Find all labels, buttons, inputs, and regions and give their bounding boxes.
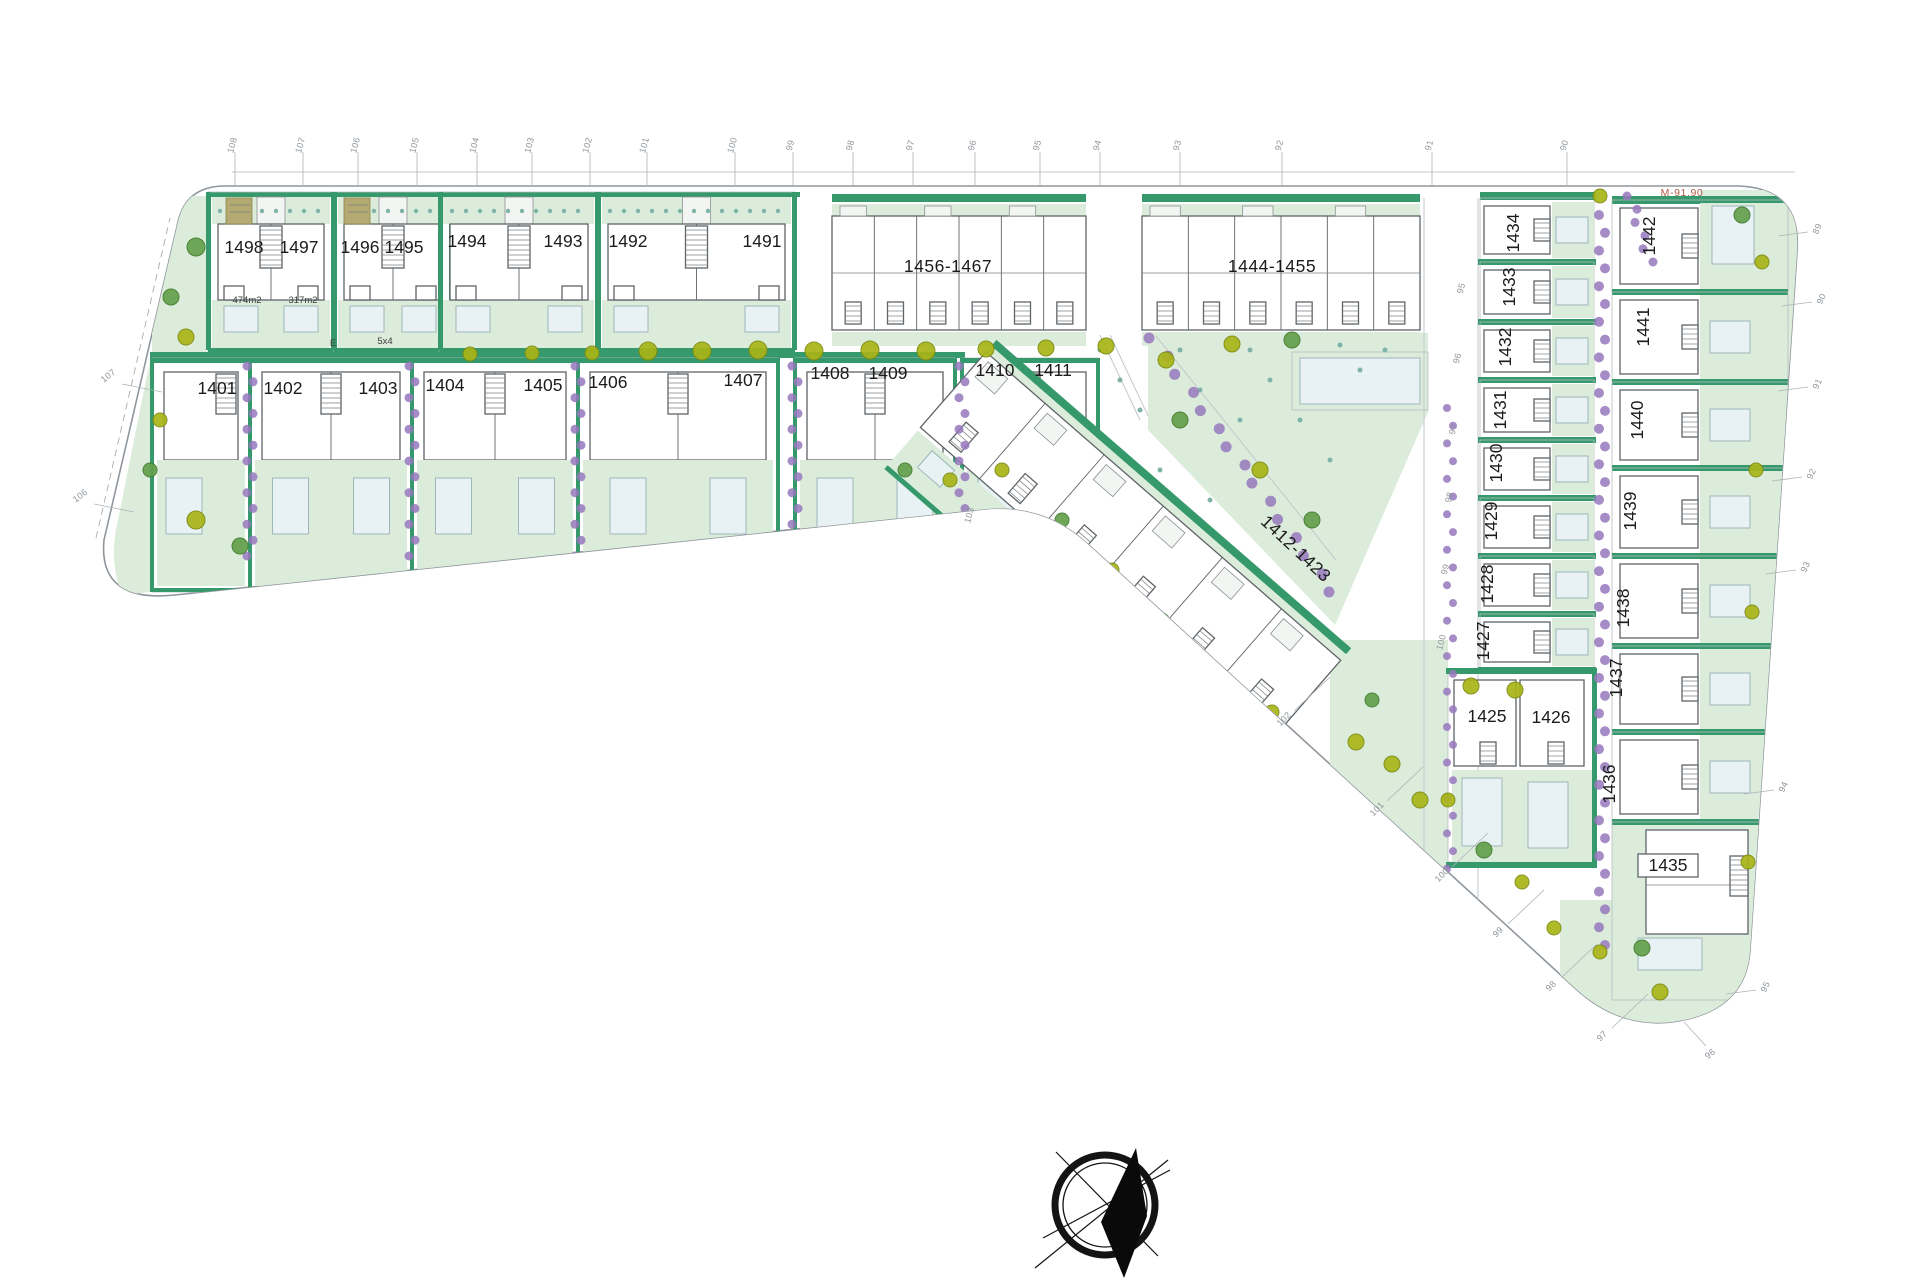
shrub-icon — [1443, 759, 1451, 767]
shrub-icon — [1600, 442, 1610, 452]
tree-icon — [898, 463, 912, 477]
shrub-icon — [1600, 335, 1610, 345]
shrub-icon — [1449, 812, 1457, 820]
planting-dot-icon — [450, 209, 454, 213]
pool — [1556, 629, 1588, 655]
boundary-marker: 102 — [580, 136, 594, 154]
shrub-icon — [1443, 900, 1451, 908]
boundary-marker: 95 — [1031, 139, 1043, 152]
shrub-icon — [405, 393, 414, 402]
plot-label: 1495 — [385, 237, 424, 257]
planter — [344, 198, 370, 224]
shrub-icon — [249, 504, 258, 513]
shrub-icon — [788, 520, 797, 529]
tree-icon — [1755, 255, 1769, 269]
shrub-icon — [1594, 602, 1604, 612]
tree-icon — [1652, 984, 1668, 1000]
tree-icon — [693, 342, 711, 360]
planting-dot-icon — [720, 209, 724, 213]
tree-icon — [1749, 463, 1763, 477]
shrub-icon — [1449, 457, 1457, 465]
shrub-icon — [1443, 581, 1451, 589]
pool — [1710, 321, 1750, 353]
planting-dot-icon — [1328, 458, 1333, 463]
tree-icon — [1365, 693, 1379, 707]
shrub-icon — [794, 536, 803, 545]
shrub-icon — [1594, 709, 1604, 719]
shrub-icon — [794, 409, 803, 418]
shrub-icon — [1600, 904, 1610, 914]
planting-dot-icon — [1158, 468, 1163, 473]
pool — [1556, 456, 1588, 482]
shrub-icon — [243, 393, 252, 402]
compass-rose-icon — [1035, 1148, 1170, 1278]
shrub-icon — [243, 425, 252, 434]
tree-icon — [232, 538, 248, 554]
shrub-icon — [243, 457, 252, 466]
planting-dot-icon — [534, 209, 538, 213]
shrub-icon — [961, 441, 970, 450]
shrub-icon — [961, 409, 970, 418]
shrub-icon — [411, 377, 420, 386]
shrub-icon — [1633, 205, 1642, 214]
pool — [1556, 279, 1588, 305]
shrub-icon — [1443, 688, 1451, 696]
shrub-icon — [1594, 317, 1604, 327]
shrub-icon — [1443, 404, 1451, 412]
planting-dot-icon — [1338, 343, 1343, 348]
shrub-icon — [1594, 459, 1604, 469]
shrub-icon — [1623, 192, 1632, 201]
planting-dot-icon — [1268, 378, 1273, 383]
planting-dot-icon — [1298, 418, 1303, 423]
shrub-icon — [1443, 617, 1451, 625]
plot-label: 1407 — [724, 370, 763, 390]
plot-label: 1406 — [589, 372, 628, 392]
tree-icon — [463, 347, 477, 361]
pool — [436, 478, 472, 534]
planting-dot-icon — [464, 209, 468, 213]
shrub-icon — [788, 552, 797, 561]
shrub-icon — [1600, 477, 1610, 487]
shrub-icon — [961, 377, 970, 386]
shrub-icon — [961, 472, 970, 481]
planting-dot-icon — [428, 209, 432, 213]
shrub-icon — [405, 520, 414, 529]
tree-icon — [178, 329, 194, 345]
shrub-icon — [243, 488, 252, 497]
planting-dot-icon — [650, 209, 654, 213]
shrub-icon — [1594, 566, 1604, 576]
pool — [1710, 409, 1750, 441]
boundary-marker: 107 — [293, 136, 307, 154]
tree-icon — [1205, 663, 1219, 677]
shrub-icon — [1600, 869, 1610, 879]
shrub-icon — [1600, 726, 1610, 736]
boundary-marker: 96 — [966, 139, 978, 152]
tree-icon — [1384, 756, 1400, 772]
planting-dot-icon — [636, 209, 640, 213]
shrub-icon — [1594, 673, 1604, 683]
plot-label: 1405 — [524, 375, 563, 395]
tree-icon — [749, 341, 767, 359]
shrub-icon — [1600, 263, 1610, 273]
shrub-icon — [571, 488, 580, 497]
plot-label: 1403 — [359, 378, 398, 398]
shrub-icon — [1265, 496, 1276, 507]
tree-icon — [639, 342, 657, 360]
planting-dot-icon — [692, 209, 696, 213]
pool — [610, 478, 646, 534]
shrub-icon — [788, 457, 797, 466]
shrub-icon — [955, 393, 964, 402]
communal-pool — [1300, 358, 1420, 404]
plot-label: 1401 — [198, 378, 237, 398]
shrub-icon — [1449, 634, 1457, 642]
plot-label: 1427 — [1473, 622, 1493, 661]
pool — [1556, 217, 1588, 243]
shrub-icon — [1449, 599, 1457, 607]
shrub-icon — [788, 425, 797, 434]
shrub-icon — [788, 362, 797, 371]
plot-label: 1437 — [1606, 659, 1626, 698]
planting-dot-icon — [218, 209, 222, 213]
plot-label: 1492 — [609, 231, 648, 251]
boundary-marker: 92 — [1805, 467, 1819, 481]
planting-dot-icon — [386, 209, 390, 213]
boundary-marker: 99 — [1491, 925, 1506, 940]
shrub-icon — [405, 457, 414, 466]
boundary-marker: 89 — [1811, 222, 1825, 236]
planting-dot-icon — [1178, 348, 1183, 353]
plot-label: 1404 — [426, 375, 465, 395]
boundary-marker: 106 — [348, 136, 362, 154]
plot-label: 1438 — [1613, 589, 1633, 628]
shrub-icon — [1600, 584, 1610, 594]
shrub-icon — [1600, 370, 1610, 380]
planting-dot-icon — [734, 209, 738, 213]
planting-dot-icon — [1358, 368, 1363, 373]
shrub-icon — [1600, 406, 1610, 416]
tree-icon — [1515, 875, 1529, 889]
shrub-icon — [1188, 387, 1199, 398]
tree-icon — [1734, 207, 1750, 223]
shrub-icon — [1600, 620, 1610, 630]
pool — [745, 306, 779, 332]
shrub-icon — [1324, 587, 1335, 598]
shrub-icon — [1594, 531, 1604, 541]
shrub-icon — [1594, 495, 1604, 505]
shrub-icon — [1449, 918, 1457, 926]
tree-icon — [1172, 412, 1188, 428]
shrub-icon — [577, 441, 586, 450]
plot-label: 1436 — [1599, 765, 1619, 804]
tree-icon — [805, 342, 823, 360]
area-label: 474m2 — [232, 295, 261, 306]
shrub-icon — [1443, 546, 1451, 554]
shrub-icon — [249, 409, 258, 418]
boundary-marker: 96 — [1703, 1046, 1718, 1060]
pool — [1154, 656, 1191, 692]
boundary-marker: 94 — [1777, 780, 1791, 794]
planting-dot-icon — [562, 209, 566, 213]
shrub-icon — [1594, 637, 1604, 647]
tree-icon — [943, 473, 957, 487]
tree-icon — [1348, 734, 1364, 750]
tree-icon — [1304, 512, 1320, 528]
plot-label: 1441 — [1633, 308, 1653, 347]
shrub-icon — [1169, 369, 1180, 380]
shrub-icon — [1443, 652, 1451, 660]
tree-icon — [861, 341, 879, 359]
shrub-icon — [1443, 723, 1451, 731]
plot-label: 1425 — [1468, 706, 1507, 726]
shrub-icon — [1600, 299, 1610, 309]
shrub-icon — [1594, 281, 1604, 291]
pool — [284, 306, 318, 332]
shrub-icon — [1144, 333, 1155, 344]
boundary-marker: 106 — [71, 487, 90, 505]
area-label: 317m2 — [288, 295, 317, 306]
shrub-icon — [955, 425, 964, 434]
plot-label: 1428 — [1477, 565, 1497, 604]
shrub-icon — [955, 488, 964, 497]
row1-villas — [206, 192, 800, 353]
shrub-icon — [249, 472, 258, 481]
planting-dot-icon — [288, 209, 292, 213]
tree-icon — [1158, 352, 1174, 368]
shrub-icon — [1449, 776, 1457, 784]
plot-label: 1431 — [1490, 391, 1510, 430]
planting-dot-icon — [260, 209, 264, 213]
plot-label: 1435 — [1649, 855, 1688, 875]
planting-dot-icon — [400, 209, 404, 213]
shrub-icon — [1449, 741, 1457, 749]
shrub-icon — [1600, 833, 1610, 843]
planting-dot-icon — [706, 209, 710, 213]
planting-dot-icon — [1118, 378, 1123, 383]
shrub-icon — [955, 552, 964, 561]
shrub-icon — [955, 362, 964, 371]
shrub-icon — [1594, 815, 1604, 825]
shrub-icon — [577, 409, 586, 418]
planting-dot-icon — [520, 209, 524, 213]
boundary-marker: 90 — [1558, 139, 1570, 152]
shrub-icon — [1221, 441, 1232, 452]
pool — [1710, 761, 1750, 793]
plot-label: 1494 — [448, 231, 487, 251]
shrub-icon — [794, 377, 803, 386]
shrub-icon — [788, 488, 797, 497]
pool — [710, 478, 746, 534]
pool — [1556, 572, 1588, 598]
planting-dot-icon — [1248, 348, 1253, 353]
tree-icon — [187, 511, 205, 529]
area-label: 5x4 — [377, 336, 392, 347]
plot-label: 1491 — [743, 231, 782, 251]
shrub-icon — [1449, 847, 1457, 855]
planting-dot-icon — [302, 209, 306, 213]
tree-icon — [1098, 338, 1114, 354]
shrub-icon — [1594, 210, 1604, 220]
shrub-icon — [1594, 922, 1604, 932]
planting-dot-icon — [608, 209, 612, 213]
shrub-icon — [961, 536, 970, 545]
boundary-marker: 94 — [1091, 139, 1103, 152]
plot-label: 1409 — [869, 363, 908, 383]
boundary-marker: 100 — [725, 136, 739, 154]
shrub-icon — [411, 536, 420, 545]
boundary-marker: 107 — [99, 367, 118, 385]
plot-label: 1430 — [1486, 443, 1506, 482]
tree-icon — [1412, 792, 1428, 808]
planting-dot-icon — [776, 209, 780, 213]
plot-label: 1410 — [976, 360, 1015, 380]
pool — [456, 306, 490, 332]
pool — [1556, 338, 1588, 364]
pool — [1710, 496, 1750, 528]
shrub-icon — [411, 409, 420, 418]
shrub-icon — [1240, 460, 1251, 471]
shrub-icon — [1600, 228, 1610, 238]
shrub-icon — [405, 425, 414, 434]
shrub-icon — [1594, 744, 1604, 754]
pool — [1036, 554, 1073, 590]
tree-icon — [525, 346, 539, 360]
shrub-icon — [249, 536, 258, 545]
tree-icon — [1745, 605, 1759, 619]
boundary-marker: 92 — [1273, 139, 1285, 152]
shrub-icon — [411, 504, 420, 513]
pool — [350, 306, 384, 332]
planting-dot-icon — [678, 209, 682, 213]
tree-icon — [917, 342, 935, 360]
shrub-icon — [411, 472, 420, 481]
planting-dot-icon — [664, 209, 668, 213]
planting-dot-icon — [622, 209, 626, 213]
boundary-marker: 98 — [844, 139, 856, 152]
planting-dot-icon — [548, 209, 552, 213]
planting-dot-icon — [748, 209, 752, 213]
shrub-icon — [571, 393, 580, 402]
plot-label: 1440 — [1627, 400, 1647, 439]
shrub-icon — [405, 488, 414, 497]
boundary-marker: 90 — [1815, 292, 1829, 306]
shrub-icon — [405, 552, 414, 561]
plot-label: 1433 — [1499, 268, 1519, 307]
tree-icon — [1224, 336, 1240, 352]
planting-dot-icon — [274, 209, 278, 213]
tree-icon — [1547, 921, 1561, 935]
shrub-icon — [577, 472, 586, 481]
plot-label: 1496 — [341, 237, 380, 257]
tree-icon — [995, 463, 1009, 477]
plot-label: 1429 — [1481, 502, 1501, 541]
tree-icon — [1441, 793, 1455, 807]
shrub-icon — [249, 441, 258, 450]
pool — [224, 306, 258, 332]
boundary-marker: 108 — [225, 136, 239, 154]
shrub-icon — [243, 520, 252, 529]
planter — [226, 198, 252, 224]
boundary-marker: 97 — [1595, 1029, 1610, 1044]
tree-icon — [1155, 613, 1169, 627]
tree-icon — [1252, 462, 1268, 478]
planting-dot-icon — [1138, 408, 1143, 413]
plot-label: 1498 — [225, 237, 264, 257]
shrub-icon — [1214, 423, 1225, 434]
plot-label: 1497 — [280, 237, 319, 257]
shrub-icon — [1443, 829, 1451, 837]
boundary-marker: 103 — [522, 136, 536, 154]
block-label: 1456-1467 — [904, 256, 992, 276]
shrub-icon — [249, 377, 258, 386]
pool — [614, 306, 648, 332]
planting-dot-icon — [762, 209, 766, 213]
plot-label: 1408 — [811, 363, 850, 383]
pool — [1710, 585, 1750, 617]
shrub-icon — [955, 457, 964, 466]
shrub-icon — [1443, 439, 1451, 447]
tree-icon — [1476, 842, 1492, 858]
plot-label: 1439 — [1620, 492, 1640, 531]
pool — [1556, 514, 1588, 540]
plot-label: 1432 — [1495, 328, 1515, 367]
pool — [1556, 397, 1588, 423]
planting-dot-icon — [1238, 418, 1243, 423]
shrub-icon — [577, 377, 586, 386]
shrub-icon — [788, 393, 797, 402]
plot-label: 1426 — [1532, 707, 1571, 727]
planting-dot-icon — [478, 209, 482, 213]
tree-icon — [1507, 682, 1523, 698]
shrub-icon — [571, 520, 580, 529]
shrub-icon — [577, 504, 586, 513]
site-plan-canvas: 1081071061051041031021011009998979695949… — [0, 0, 1920, 1280]
planting-dot-icon — [1208, 498, 1213, 503]
shrub-icon — [794, 441, 803, 450]
pool — [1462, 778, 1502, 846]
boundary-marker: 91 — [1811, 377, 1825, 391]
pool — [548, 306, 582, 332]
shrub-icon — [1443, 475, 1451, 483]
shrub-icon — [1594, 352, 1604, 362]
tree-icon — [153, 413, 167, 427]
area-label: E — [330, 338, 336, 349]
shrub-icon — [1594, 424, 1604, 434]
boundary-marker: 91 — [1423, 139, 1435, 152]
pool — [519, 478, 555, 534]
shrub-icon — [1594, 388, 1604, 398]
parcel-label: M-91.90 — [1661, 187, 1704, 199]
plot-label: 1493 — [544, 231, 583, 251]
pool — [1528, 782, 1568, 848]
shrub-icon — [405, 362, 414, 371]
pool — [273, 478, 309, 534]
tree-icon — [1741, 855, 1755, 869]
shrub-icon — [243, 362, 252, 371]
pool — [1710, 673, 1750, 705]
shrub-icon — [571, 425, 580, 434]
tree-icon — [1634, 940, 1650, 956]
shrub-icon — [1600, 513, 1610, 523]
shrub-icon — [1449, 528, 1457, 536]
boundary-marker: 93 — [1799, 560, 1813, 574]
shrub-icon — [1443, 510, 1451, 518]
shrub-icon — [411, 441, 420, 450]
site-plan-svg: 1081071061051041031021011009998979695949… — [0, 0, 1920, 1280]
planting-dot-icon — [316, 209, 320, 213]
